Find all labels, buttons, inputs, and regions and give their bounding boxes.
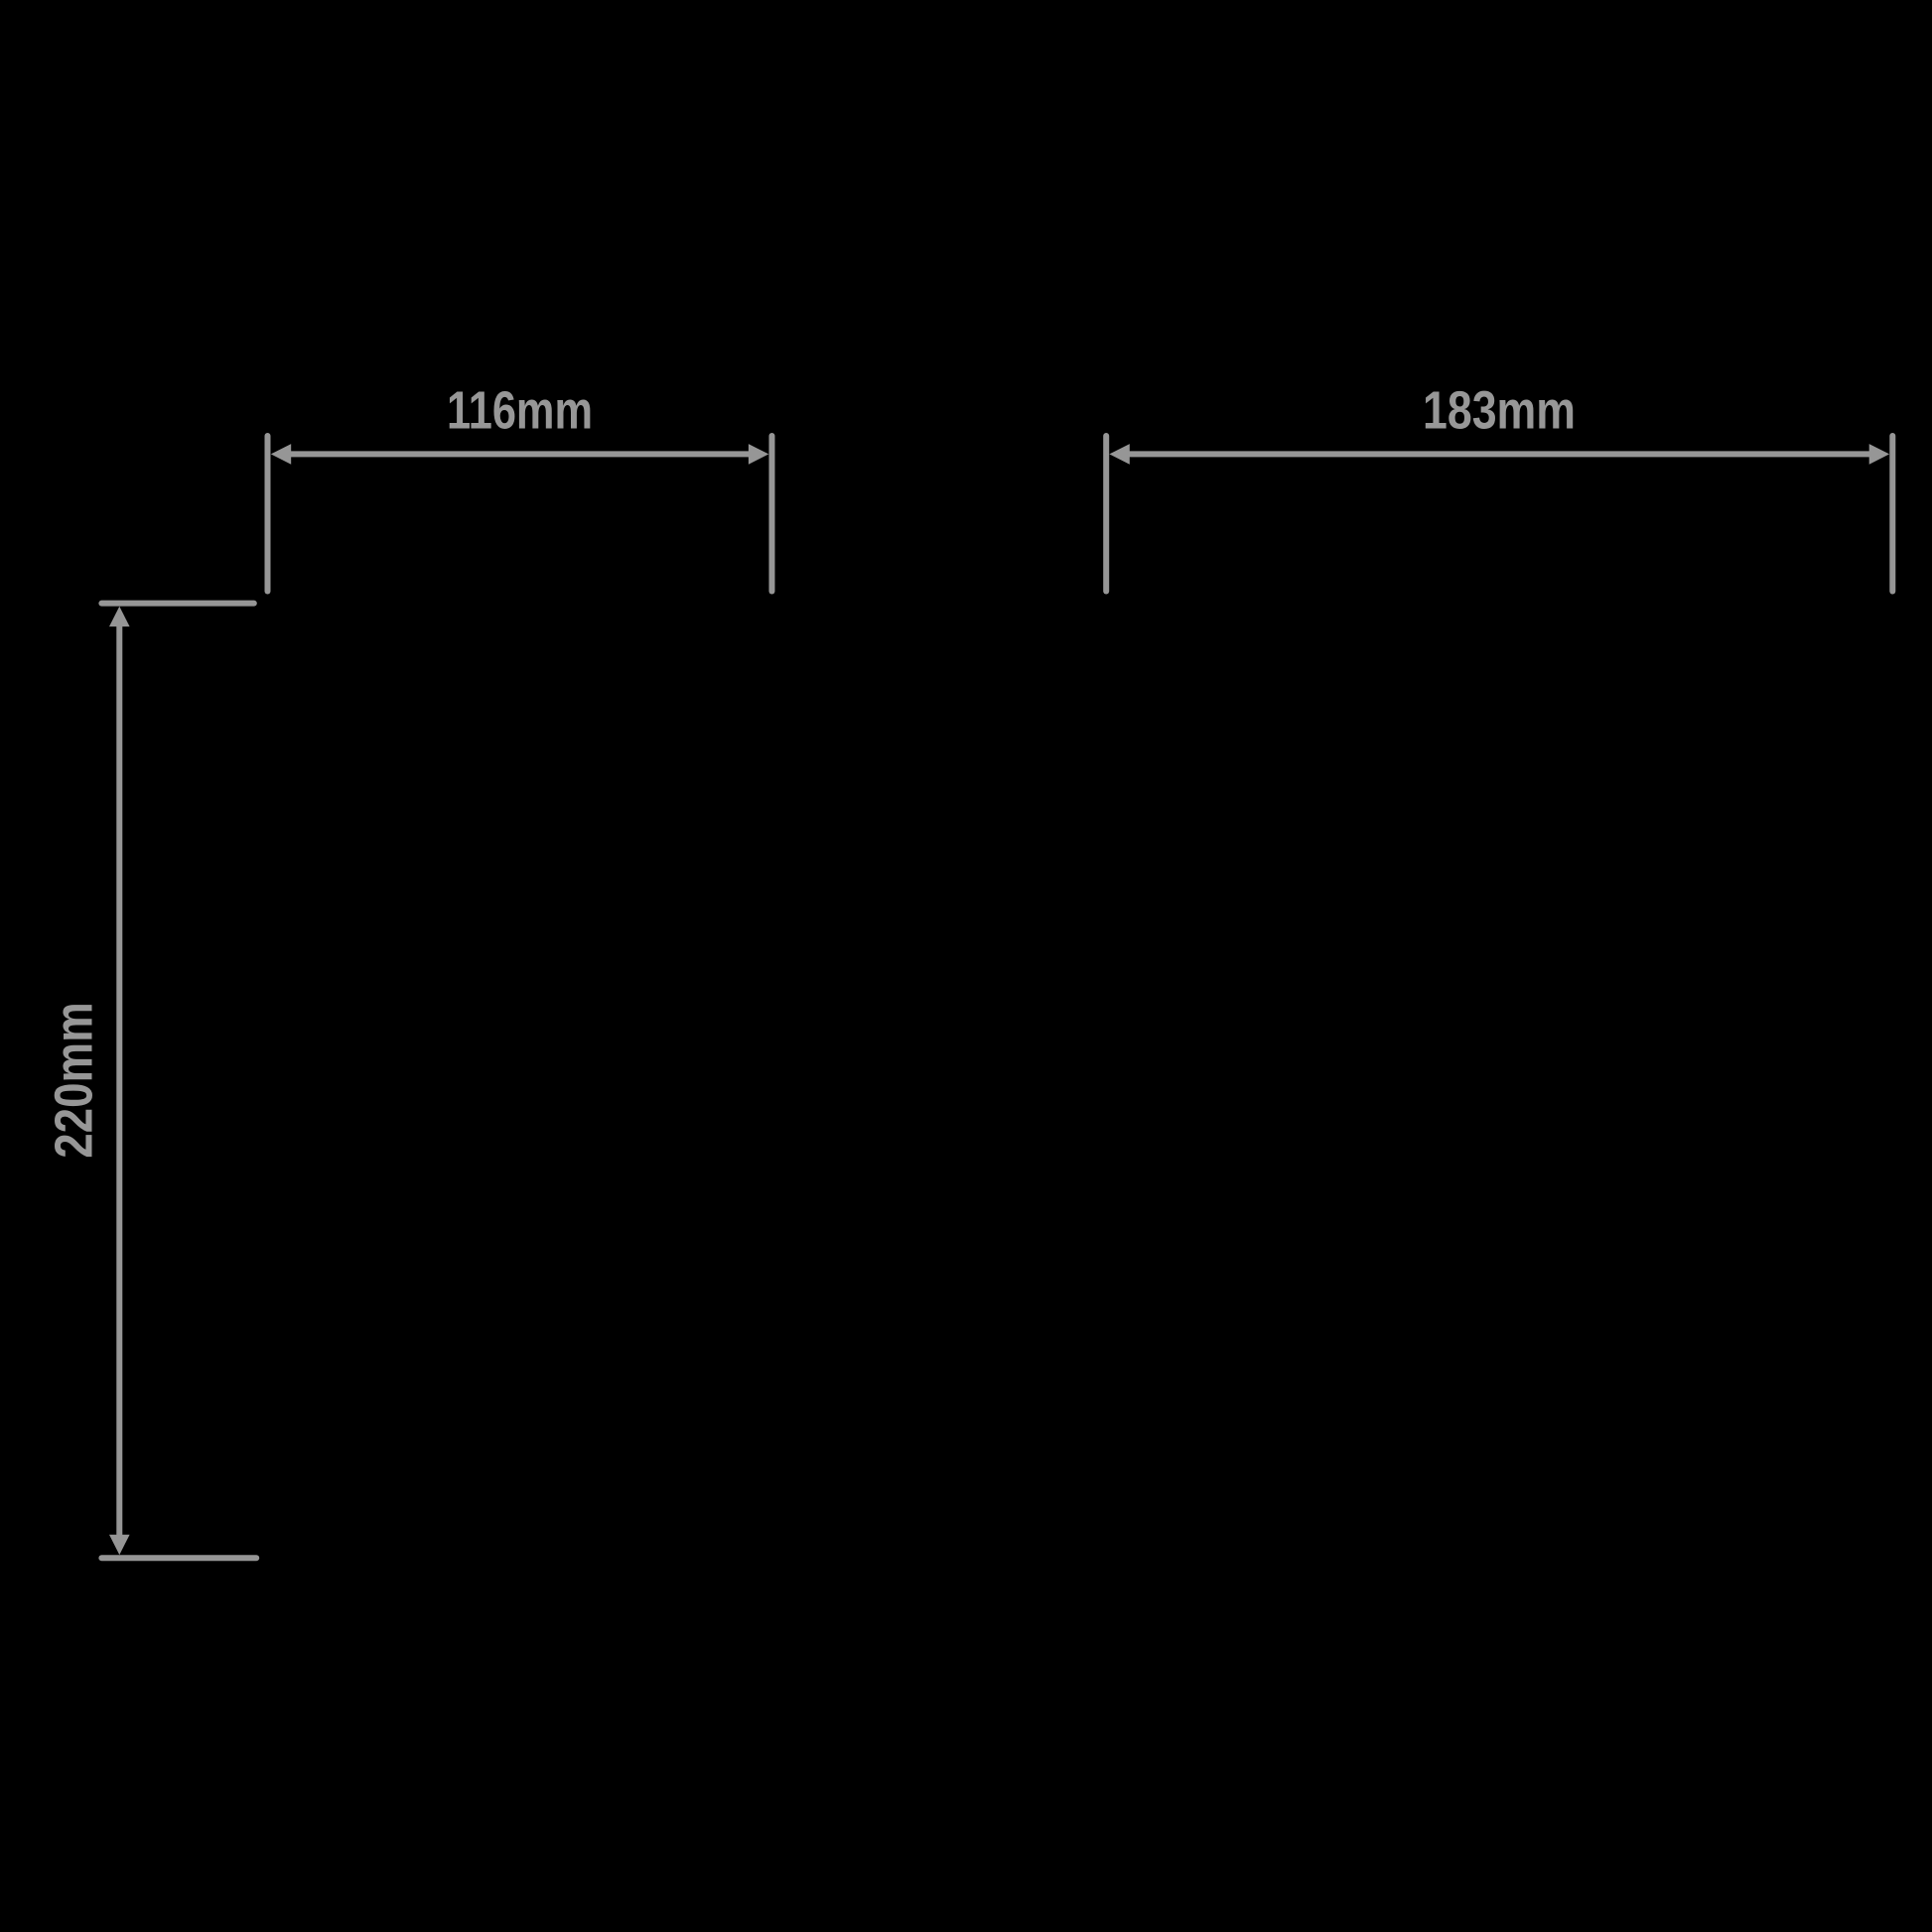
svg-text:116mm: 116mm — [447, 381, 593, 441]
svg-text:183mm: 183mm — [1423, 381, 1576, 441]
svg-text:220mm: 220mm — [45, 1002, 104, 1159]
